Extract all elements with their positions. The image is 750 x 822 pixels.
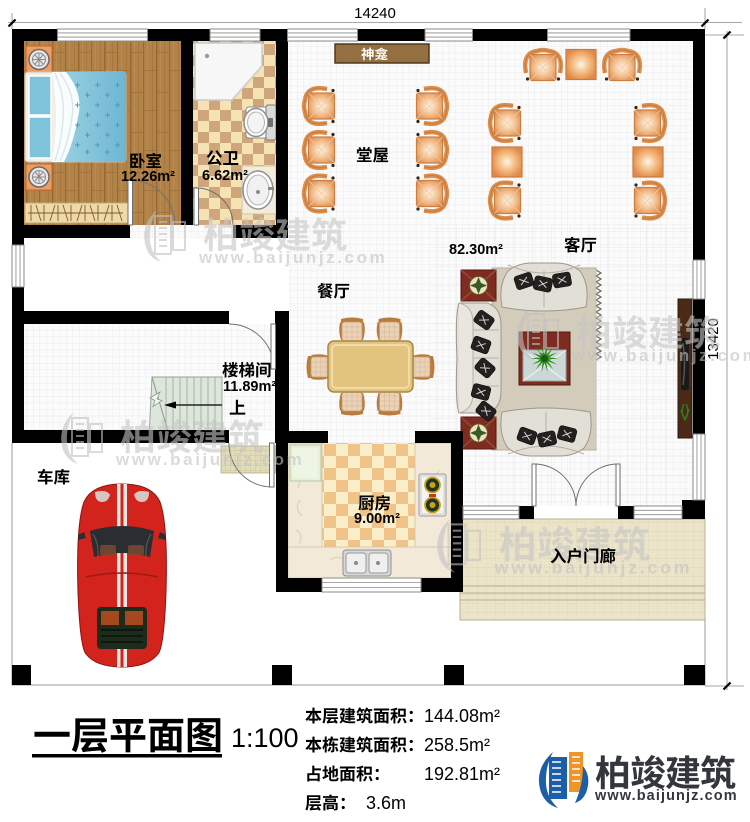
svg-text:12.26m²: 12.26m² xyxy=(121,169,175,185)
svg-text:6.62m²: 6.62m² xyxy=(202,168,248,184)
svg-text:1:100: 1:100 xyxy=(231,723,299,753)
svg-text:11.89m²: 11.89m² xyxy=(223,379,276,395)
svg-text:258.5m²: 258.5m² xyxy=(424,735,490,755)
svg-text:9.00m²: 9.00m² xyxy=(354,511,400,527)
svg-text:82.30m²: 82.30m² xyxy=(449,242,503,258)
svg-text:www.baijunjz.com: www.baijunjz.com xyxy=(594,788,738,804)
svg-text:144.08m²: 144.08m² xyxy=(424,706,500,726)
svg-text:192.81m²: 192.81m² xyxy=(424,764,500,784)
svg-text:14240: 14240 xyxy=(354,5,396,22)
svg-text:3.6m: 3.6m xyxy=(366,793,406,813)
